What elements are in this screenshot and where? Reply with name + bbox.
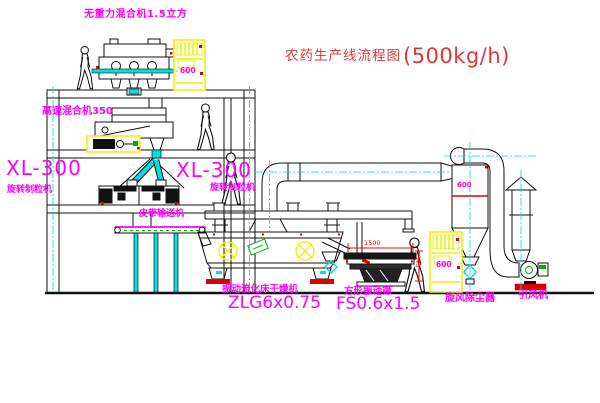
induced-draft-fan <box>515 262 548 291</box>
cyclone-name-label: 旋风除尘器 <box>445 294 495 304</box>
granulator-right-model-label: XL-300 <box>176 160 252 180</box>
worker-figure-floor2 <box>198 104 215 150</box>
cabinet2-display: 600 <box>436 261 452 269</box>
cyclone-size-label: 600 <box>457 182 472 189</box>
diagram-title: 农药生产线流程图 (500kg/h) <box>285 46 510 67</box>
granulator-left-name-label: 旋转制粒机 <box>7 186 52 195</box>
fan-name-label: 引风机 <box>518 291 548 301</box>
gravity-free-mixer <box>92 39 180 95</box>
sieve-height-dimension: 345 <box>415 255 422 267</box>
worker-figure-roof <box>77 46 92 88</box>
dryer-model-label: ZLG6x0.75 <box>228 295 321 312</box>
title-capacity: (500kg/h) <box>403 46 510 67</box>
rotary-granulator-right <box>139 180 179 205</box>
sieve-width-dimension: 1500 <box>364 240 381 247</box>
sieve-model-label: FS0.6x1.5 <box>336 296 420 313</box>
granulator-right-name-label: 旋转制粒机 <box>210 184 255 193</box>
flow-diagram: 农药生产线流程图 (500kg/h) 无重力混合机1.5立方 高速混合机350 … <box>0 0 600 403</box>
cabinet1-display: 600 <box>180 67 196 75</box>
belt-conveyor <box>115 213 211 292</box>
gravity-mixer-label: 无重力混合机1.5立方 <box>84 10 187 20</box>
granulator-left-model-label: XL-300 <box>6 158 82 178</box>
title-text: 农药生产线流程图 <box>285 50 401 64</box>
rotary-granulator-left <box>99 180 139 205</box>
high-speed-mixer-label: 高速混合机350 <box>42 107 113 117</box>
control-cabinet-1 <box>174 40 205 90</box>
belt-conveyor-label: 皮带输送机 <box>139 210 184 219</box>
